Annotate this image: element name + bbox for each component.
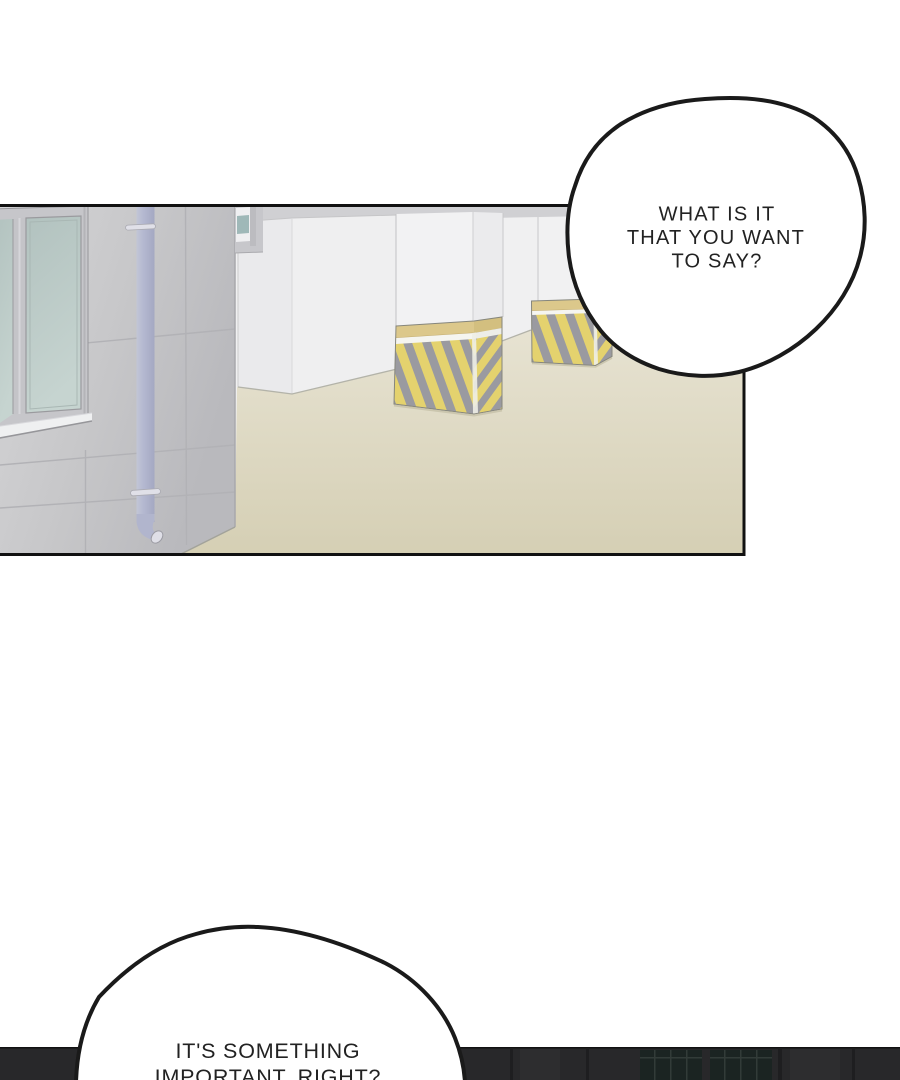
svg-text:IT'S SOMETHING: IT'S SOMETHING (176, 1039, 361, 1063)
svg-text:THAT YOU WANT: THAT YOU WANT (627, 227, 805, 249)
svg-text:TO SAY?: TO SAY? (671, 251, 762, 273)
svg-text:WHAT IS IT: WHAT IS IT (659, 204, 776, 226)
svg-text:IMPORTANT, RIGHT?: IMPORTANT, RIGHT? (155, 1065, 382, 1080)
